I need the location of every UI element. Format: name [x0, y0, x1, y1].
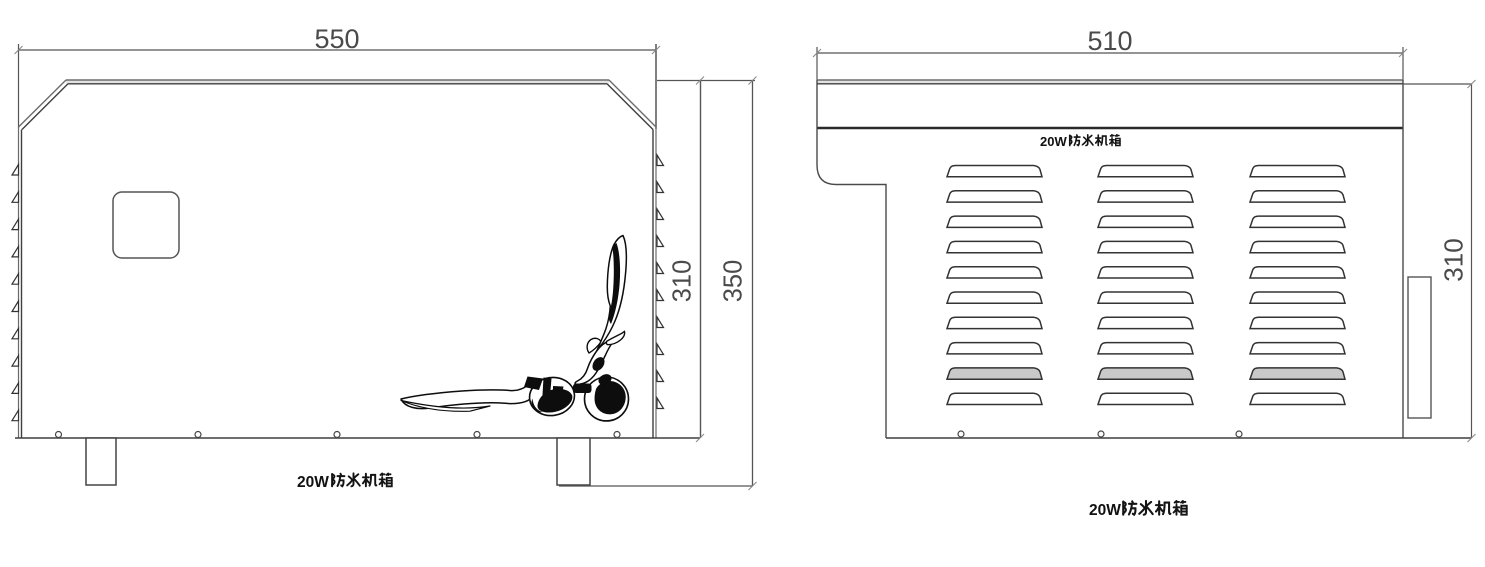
- svg-text:550: 550: [314, 24, 359, 54]
- svg-text:20W: 20W: [1089, 502, 1121, 519]
- svg-text:20W: 20W: [1040, 134, 1067, 149]
- svg-text:350: 350: [720, 260, 748, 303]
- svg-text:310: 310: [1439, 238, 1469, 281]
- svg-text:310: 310: [669, 260, 697, 303]
- svg-text:510: 510: [1087, 26, 1132, 56]
- svg-text:20W: 20W: [297, 474, 329, 491]
